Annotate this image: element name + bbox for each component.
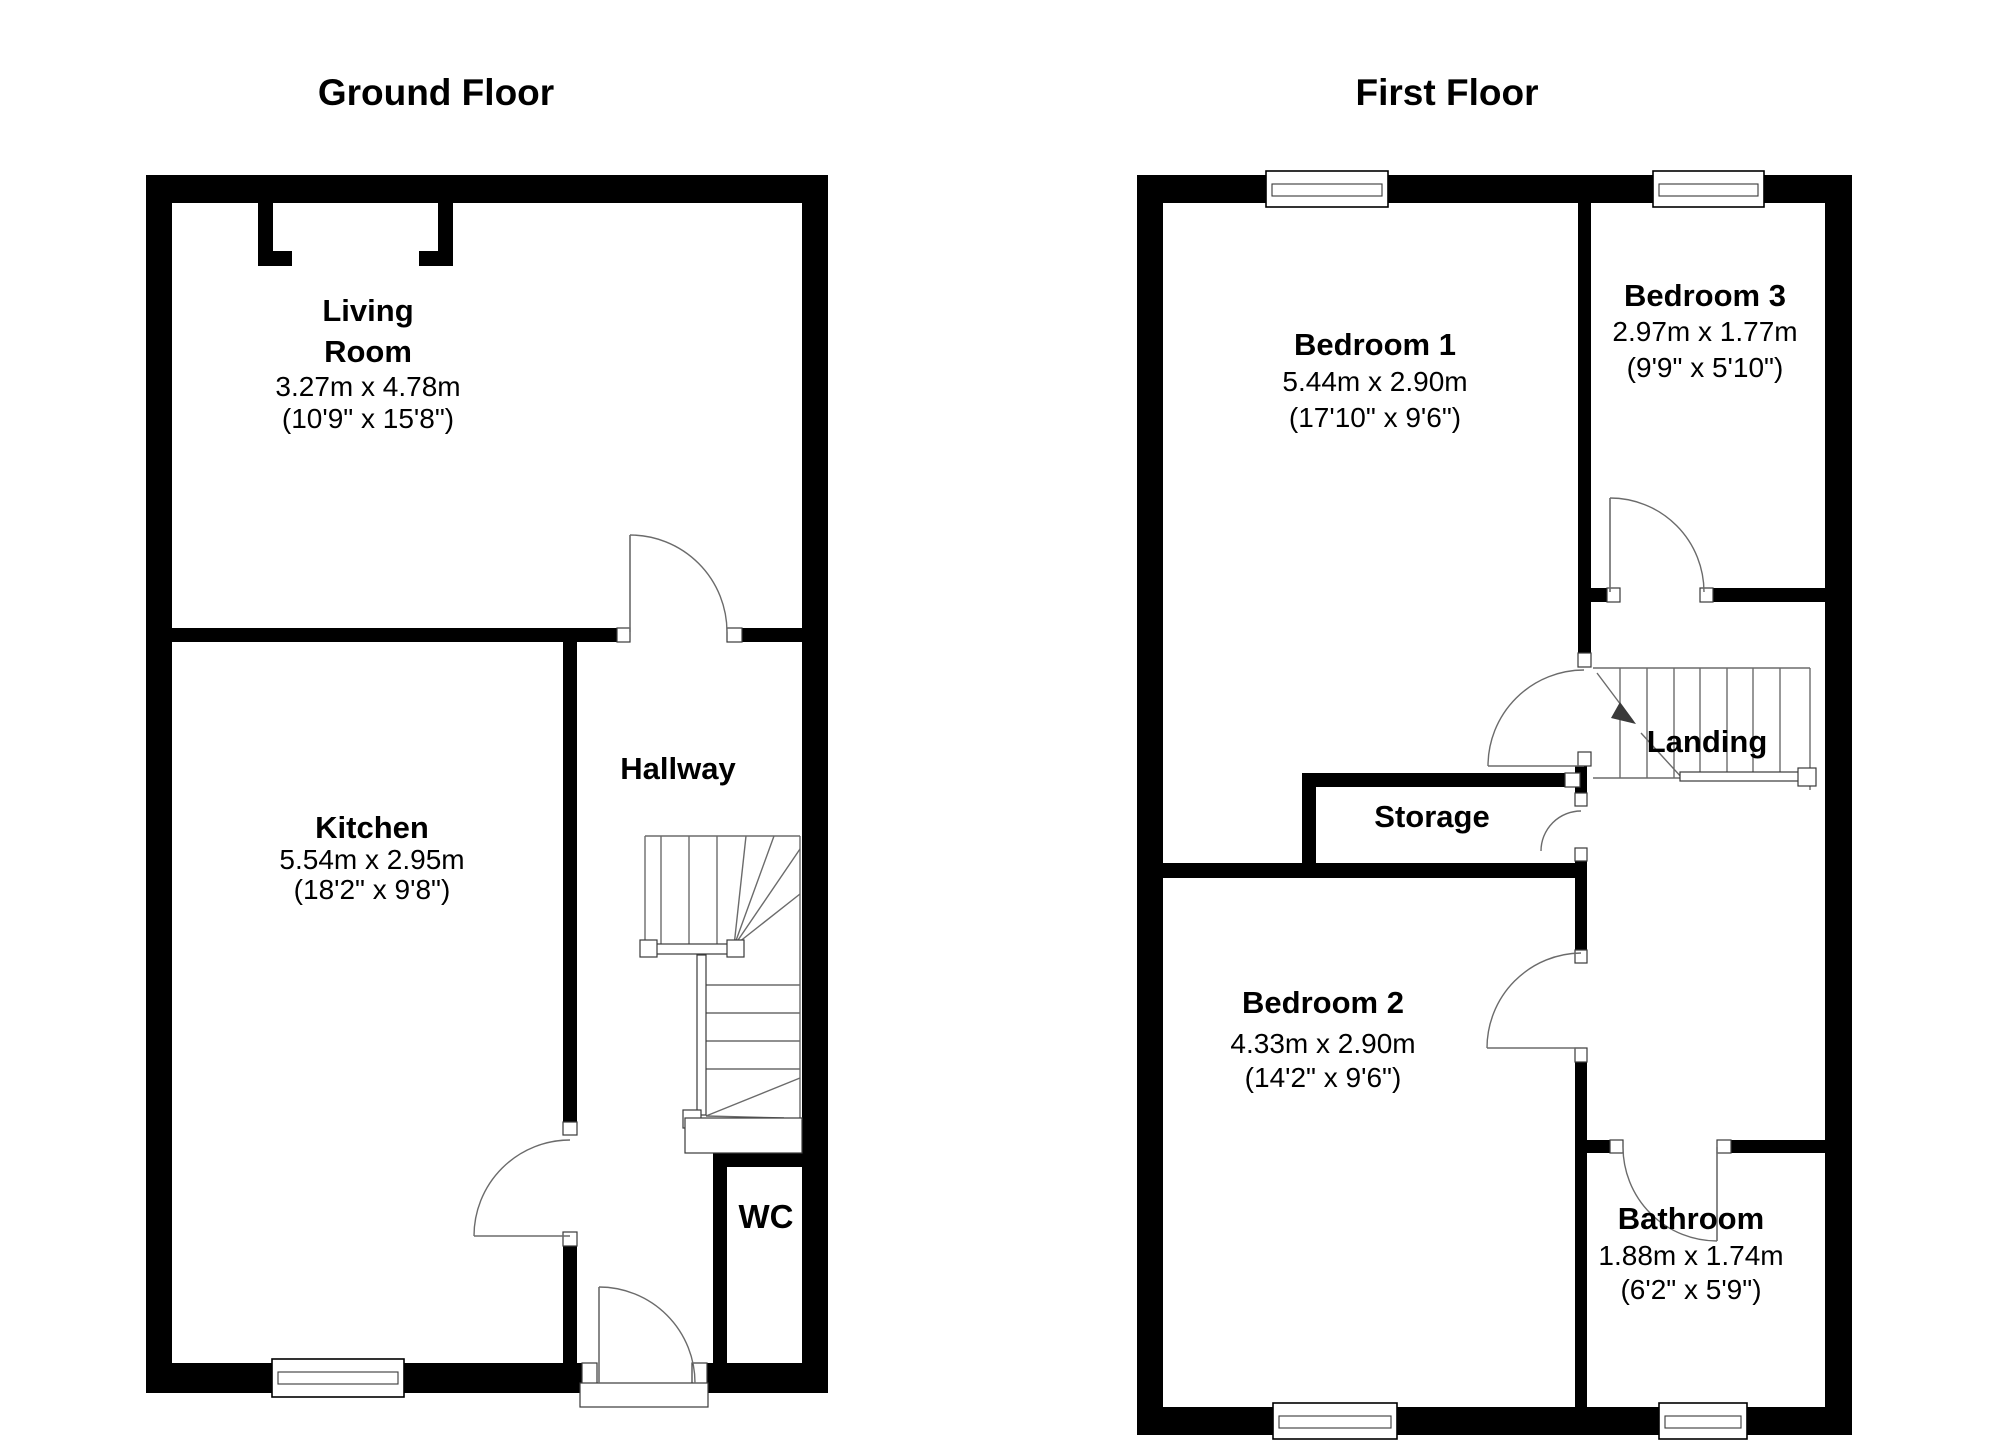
ground-floor-wall <box>172 628 617 642</box>
ground-floor-wall <box>146 175 828 203</box>
bedroom1-label: (17'10" x 9'6") <box>1289 402 1461 433</box>
bedroom2-window-pane <box>1279 1416 1391 1428</box>
bathroom-label: (6'2" x 5'9") <box>1620 1274 1761 1305</box>
bathroom-window-pane <box>1665 1416 1741 1428</box>
bathroom-label: Bathroom <box>1618 1201 1764 1236</box>
first-floor-door-jamb <box>1575 793 1587 806</box>
ground-floor-stair-detail <box>727 940 744 957</box>
first-floor-wall <box>1575 861 1587 950</box>
living-room-label: 3.27m x 4.78m <box>275 371 460 402</box>
bedroom1-door-swing-arc <box>1488 670 1584 766</box>
ground-floor-wall <box>742 628 802 642</box>
first-floor-wall <box>1713 588 1825 602</box>
ground-floor-stair-detail <box>647 944 737 954</box>
ground-floor-stair-detail <box>580 1383 708 1407</box>
first-floor-wall <box>1731 1140 1825 1153</box>
first-floor-door-jamb <box>1700 588 1713 602</box>
ground-floor-wall <box>707 1363 828 1393</box>
bedroom3-label: Bedroom 3 <box>1624 278 1786 313</box>
first-floor-door-jamb <box>1717 1140 1731 1153</box>
storage-door-swing-arc <box>1541 811 1581 851</box>
bedroom3-label: 2.97m x 1.77m <box>1612 316 1797 347</box>
ground-floor-door-jamb <box>617 628 630 642</box>
living-room-door-swing-arc <box>630 535 727 632</box>
landing-label: Landing <box>1647 724 1768 759</box>
first-floor-wall <box>1825 203 1852 1435</box>
first-floor-wall <box>1137 203 1163 1435</box>
ground-floor-wall <box>802 203 828 1393</box>
ground-floor-stair-detail <box>640 940 657 957</box>
first-floor-door-jamb <box>1575 1048 1587 1062</box>
bedroom1-window-pane <box>1272 184 1382 196</box>
bedroom3-door-swing-arc <box>1610 498 1704 592</box>
bedroom3-label: (9'9" x 5'10") <box>1627 352 1784 383</box>
wc-label: WC <box>739 1198 794 1235</box>
ground-floor-plan: LivingRoom3.27m x 4.78m(10'9" x 15'8")Ki… <box>146 175 828 1407</box>
ground-floor-door-jamb <box>563 1232 577 1246</box>
bedroom1-label: Bedroom 1 <box>1294 327 1456 362</box>
ground-floor-wall <box>146 203 172 1393</box>
kitchen-door-swing-arc <box>474 1140 570 1236</box>
ground-floor-stair-detail <box>697 955 706 1115</box>
ground-floor-stair-line <box>706 1078 800 1116</box>
living-room-label: (10'9" x 15'8") <box>282 403 454 434</box>
front-door-swing-arc <box>599 1287 695 1383</box>
first-floor-door-jamb <box>1578 752 1591 766</box>
first-floor-wall <box>1578 588 1607 602</box>
first-floor-wall <box>1313 773 1565 787</box>
first-floor-stair-arrow <box>1611 702 1636 724</box>
bedroom3-window-pane <box>1659 184 1758 196</box>
ground-floor-wall <box>713 1153 802 1167</box>
ground-floor-wall <box>713 1167 727 1363</box>
floorplan-drawing: LivingRoom3.27m x 4.78m(10'9" x 15'8")Ki… <box>0 0 2000 1454</box>
kitchen-window-pane <box>278 1372 398 1384</box>
ground-floor-door-jamb <box>563 1122 577 1135</box>
living-room-label: Living <box>322 293 413 328</box>
first-floor-plan: Bedroom 15.44m x 2.90m(17'10" x 9'6")Bed… <box>1137 171 1852 1439</box>
ground-floor-wall <box>563 642 577 1122</box>
living-room-label: Room <box>324 334 412 369</box>
bathroom-label: 1.88m x 1.74m <box>1598 1240 1783 1271</box>
ground-floor-door-jamb <box>727 628 742 642</box>
storage-label: Storage <box>1374 799 1489 834</box>
ground-floor-wall <box>563 1246 577 1363</box>
first-floor-door-jamb <box>1610 1140 1623 1153</box>
ground-floor-wall <box>419 251 453 266</box>
kitchen-label: (18'2" x 9'8") <box>294 874 451 905</box>
bedroom2-label: 4.33m x 2.90m <box>1230 1028 1415 1059</box>
first-floor-title: First Floor <box>1356 72 1539 114</box>
first-floor-wall <box>1578 203 1591 653</box>
kitchen-label: Kitchen <box>315 810 429 845</box>
bedroom2-door-swing-arc <box>1487 953 1581 1048</box>
first-floor-wall <box>1163 863 1587 878</box>
first-floor-door-jamb <box>1565 773 1580 787</box>
ground-floor-stair-line <box>734 849 800 946</box>
first-floor-wall <box>1575 1062 1587 1407</box>
bedroom1-label: 5.44m x 2.90m <box>1282 366 1467 397</box>
bedroom2-label: (14'2" x 9'6") <box>1245 1062 1402 1093</box>
bedroom2-label: Bedroom 2 <box>1242 985 1404 1020</box>
hallway-label: Hallway <box>620 751 736 786</box>
first-floor-door-jamb <box>1578 653 1591 667</box>
first-floor-stair-detail <box>1680 772 1802 781</box>
kitchen-label: 5.54m x 2.95m <box>279 844 464 875</box>
ground-floor-title: Ground Floor <box>318 72 554 114</box>
ground-floor-wall <box>258 251 292 266</box>
first-floor-wall <box>1302 773 1316 878</box>
first-floor-door-jamb <box>1575 848 1587 861</box>
first-floor-door-jamb <box>1607 588 1620 602</box>
first-floor-door-jamb <box>1575 950 1587 963</box>
ground-floor-stair-detail <box>685 1118 802 1153</box>
first-floor-stair-detail <box>1798 768 1816 786</box>
floorplan-canvas: LivingRoom3.27m x 4.78m(10'9" x 15'8")Ki… <box>0 0 2000 1454</box>
first-floor-wall <box>1587 1140 1610 1153</box>
